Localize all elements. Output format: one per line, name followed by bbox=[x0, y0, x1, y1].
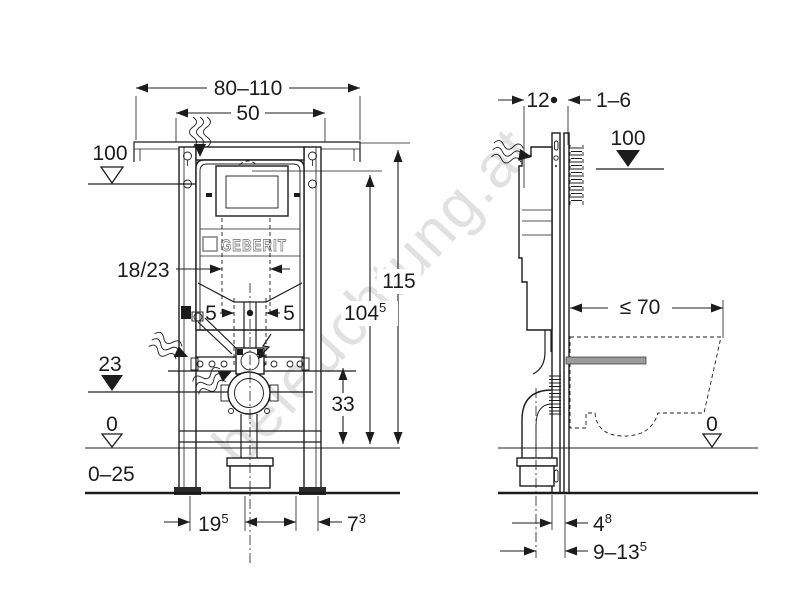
dim-0-25-label: 0–25 bbox=[88, 463, 135, 486]
dim-12-label: 12 bbox=[526, 89, 549, 112]
dim-5-left-label: 5 bbox=[205, 302, 217, 325]
dim-33-label: 33 bbox=[331, 393, 354, 416]
level-0-side-label: 0 bbox=[706, 413, 718, 436]
dim-80-110-label: 80–110 bbox=[214, 77, 283, 100]
level-0-front-label: 0 bbox=[106, 413, 118, 436]
service-window bbox=[216, 166, 288, 216]
level-23-label: 23 bbox=[98, 353, 121, 376]
dim-18-23-label: 18/23 bbox=[117, 259, 170, 282]
logo-square bbox=[203, 237, 217, 251]
dim-le-70-label: ≤ 70 bbox=[620, 296, 661, 319]
dim-1-6-label: 1–6 bbox=[596, 89, 631, 112]
level-100-side-label: 100 bbox=[610, 127, 645, 150]
dim-5-right-label: 5 bbox=[283, 302, 295, 325]
pan-fixing-bar bbox=[566, 357, 646, 364]
level-100-front-label: 100 bbox=[92, 142, 127, 165]
dim-9-13-5-label: 9–135 bbox=[593, 539, 647, 564]
logo-geberit: GEBERIT bbox=[221, 236, 287, 255]
dim-50-label: 50 bbox=[236, 102, 259, 125]
side-rail bbox=[552, 133, 569, 493]
dim-115-label: 115 bbox=[382, 270, 415, 293]
installation-frame-technical-drawing: beleuchtung.at bbox=[0, 0, 800, 600]
